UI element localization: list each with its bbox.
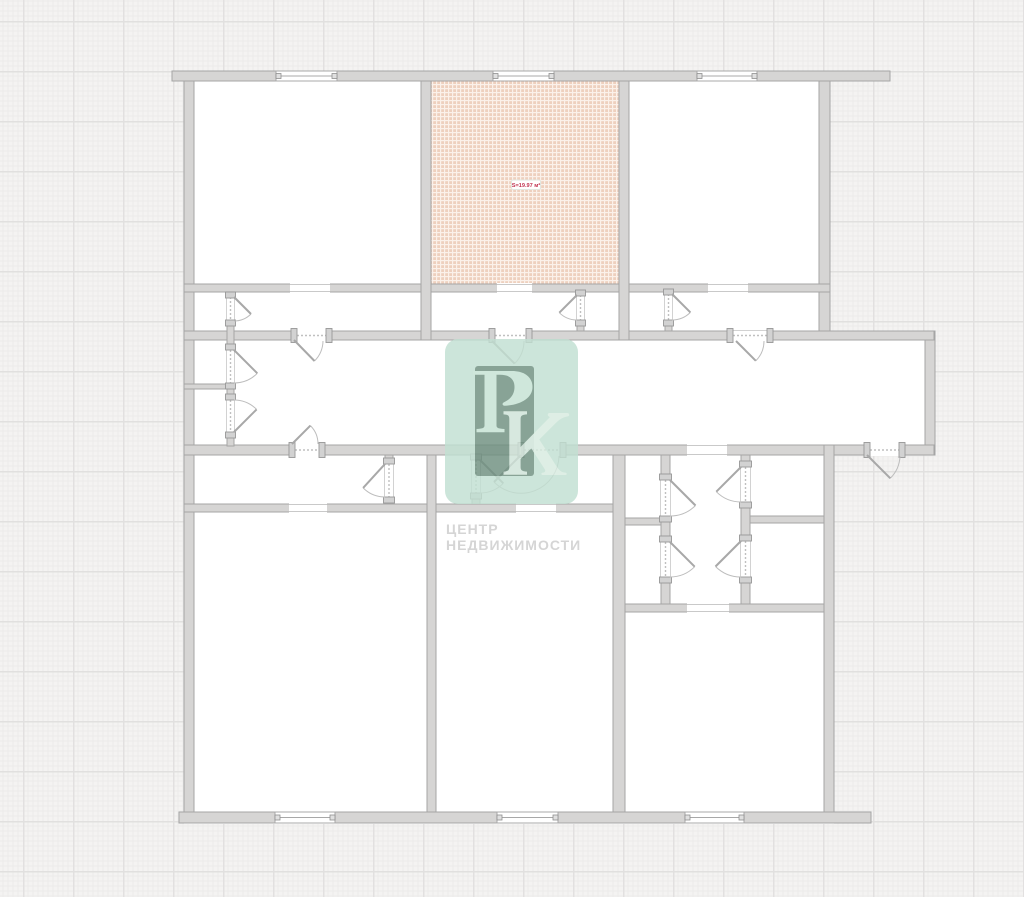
svg-text:НЕДВИЖИМОСТИ: НЕДВИЖИМОСТИ xyxy=(446,537,581,553)
svg-text:ЦЕНТР: ЦЕНТР xyxy=(446,521,499,537)
svg-text:S=19.97 м²: S=19.97 м² xyxy=(512,182,541,189)
